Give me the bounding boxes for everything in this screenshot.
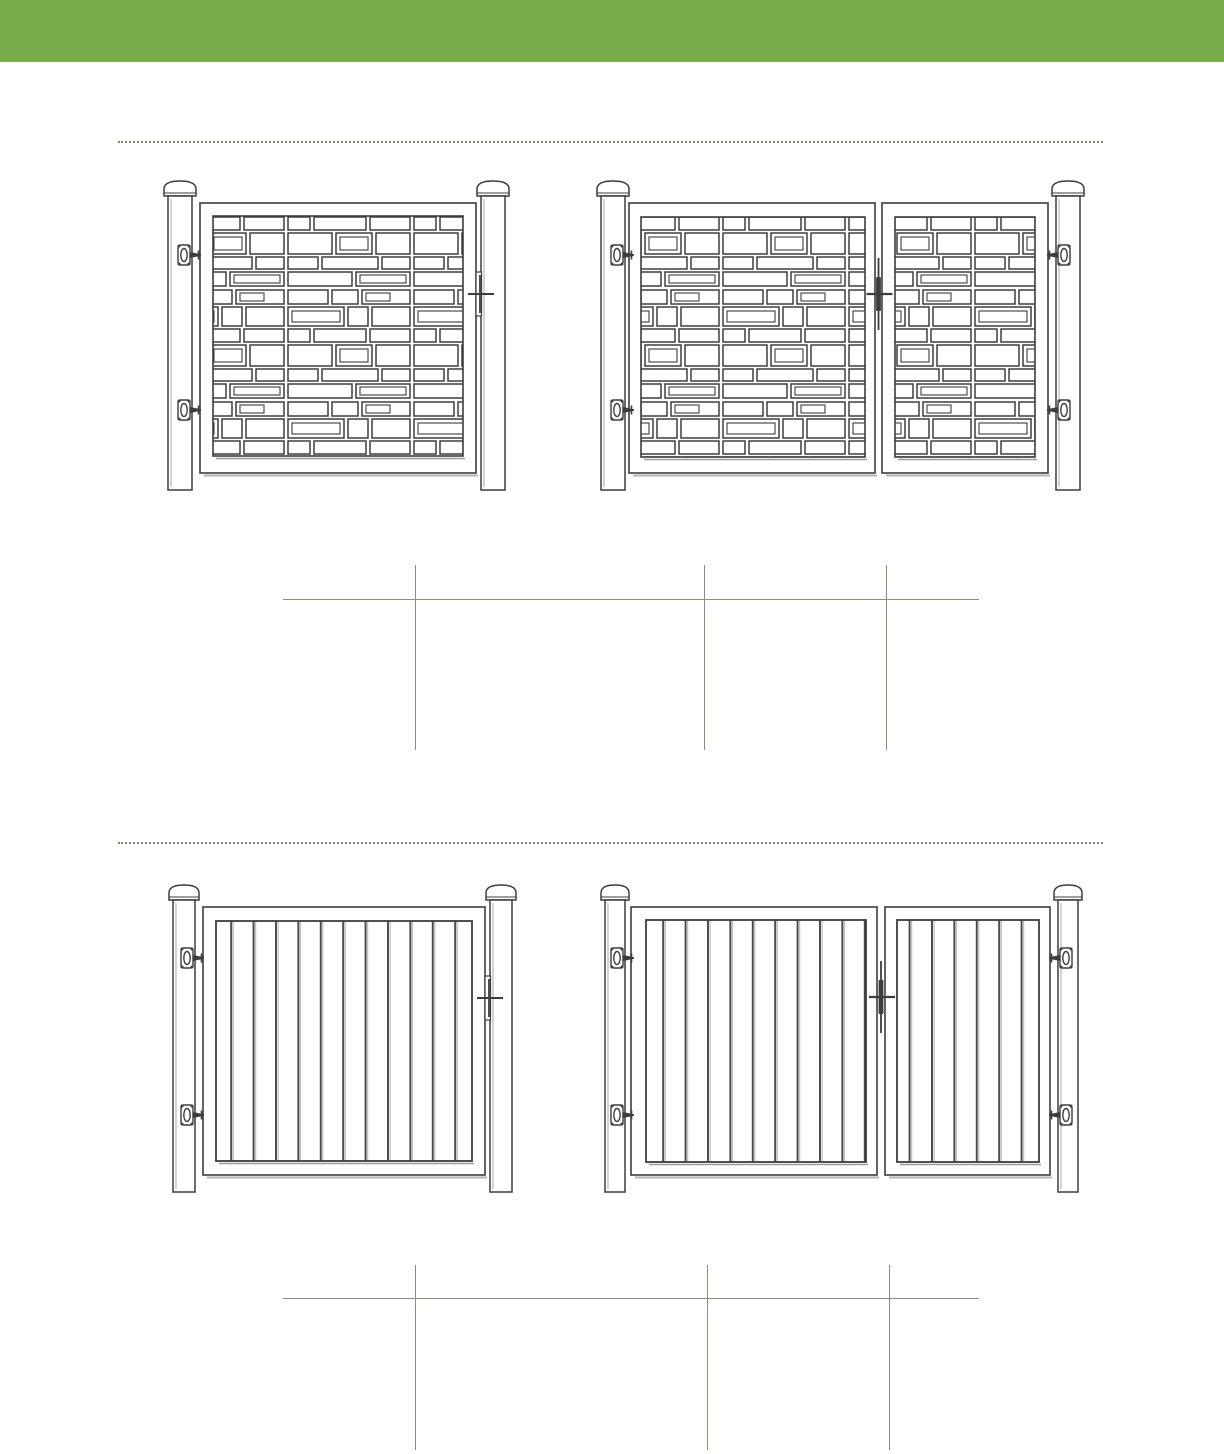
post-cap-icon (601, 885, 629, 900)
left-post (169, 885, 199, 1192)
double-gate-mosaic-drawing (595, 176, 1085, 498)
catalog-page (0, 0, 1224, 1454)
post-cap-icon (1052, 181, 1084, 196)
post-cap-icon (1054, 885, 1082, 900)
table-header-rule (283, 599, 979, 600)
hinge-icon (181, 1105, 205, 1126)
right-post (486, 885, 516, 1192)
hinge-icon (181, 948, 205, 969)
hinge-icon (1047, 245, 1071, 266)
post-cap-icon (164, 181, 196, 196)
post-cap-icon (597, 181, 629, 196)
hinge-icon (178, 245, 202, 266)
gate-infill-mosaic (213, 216, 463, 456)
right-post (1054, 885, 1082, 1192)
gate-infill-boards (216, 921, 472, 1161)
gate-right-leaf-infill-boards (897, 920, 1039, 1162)
hinge-icon (1049, 1105, 1073, 1126)
left-post (597, 181, 629, 490)
gate-right-leaf-infill-mosaic (895, 217, 1035, 457)
single-gate-boards-drawing (163, 880, 519, 1202)
page-header-band (0, 0, 1224, 62)
gate-left-leaf-infill-boards (646, 920, 866, 1162)
right-post (477, 181, 509, 490)
table-column-divider (704, 565, 705, 750)
section-divider-bottom (118, 842, 1103, 844)
hinge-icon (1049, 948, 1073, 969)
table-column-divider (415, 565, 416, 750)
left-post (601, 885, 629, 1192)
left-post (164, 181, 196, 490)
right-post (1052, 181, 1084, 490)
post-cap-icon (477, 181, 509, 196)
post-cap-icon (486, 885, 516, 900)
table-column-divider (707, 1265, 708, 1450)
table-column-divider (415, 1265, 416, 1450)
double-gate-boards-drawing (595, 880, 1085, 1202)
table-column-divider (889, 1265, 890, 1450)
gate-left-leaf-infill-mosaic (641, 217, 865, 457)
table-header-rule (283, 1298, 979, 1299)
post-cap-icon (169, 885, 199, 900)
section-divider-top (118, 141, 1103, 143)
hinge-icon (178, 400, 202, 421)
hinge-icon (1047, 400, 1071, 421)
single-gate-mosaic-drawing (160, 176, 512, 498)
table-column-divider (886, 565, 887, 750)
